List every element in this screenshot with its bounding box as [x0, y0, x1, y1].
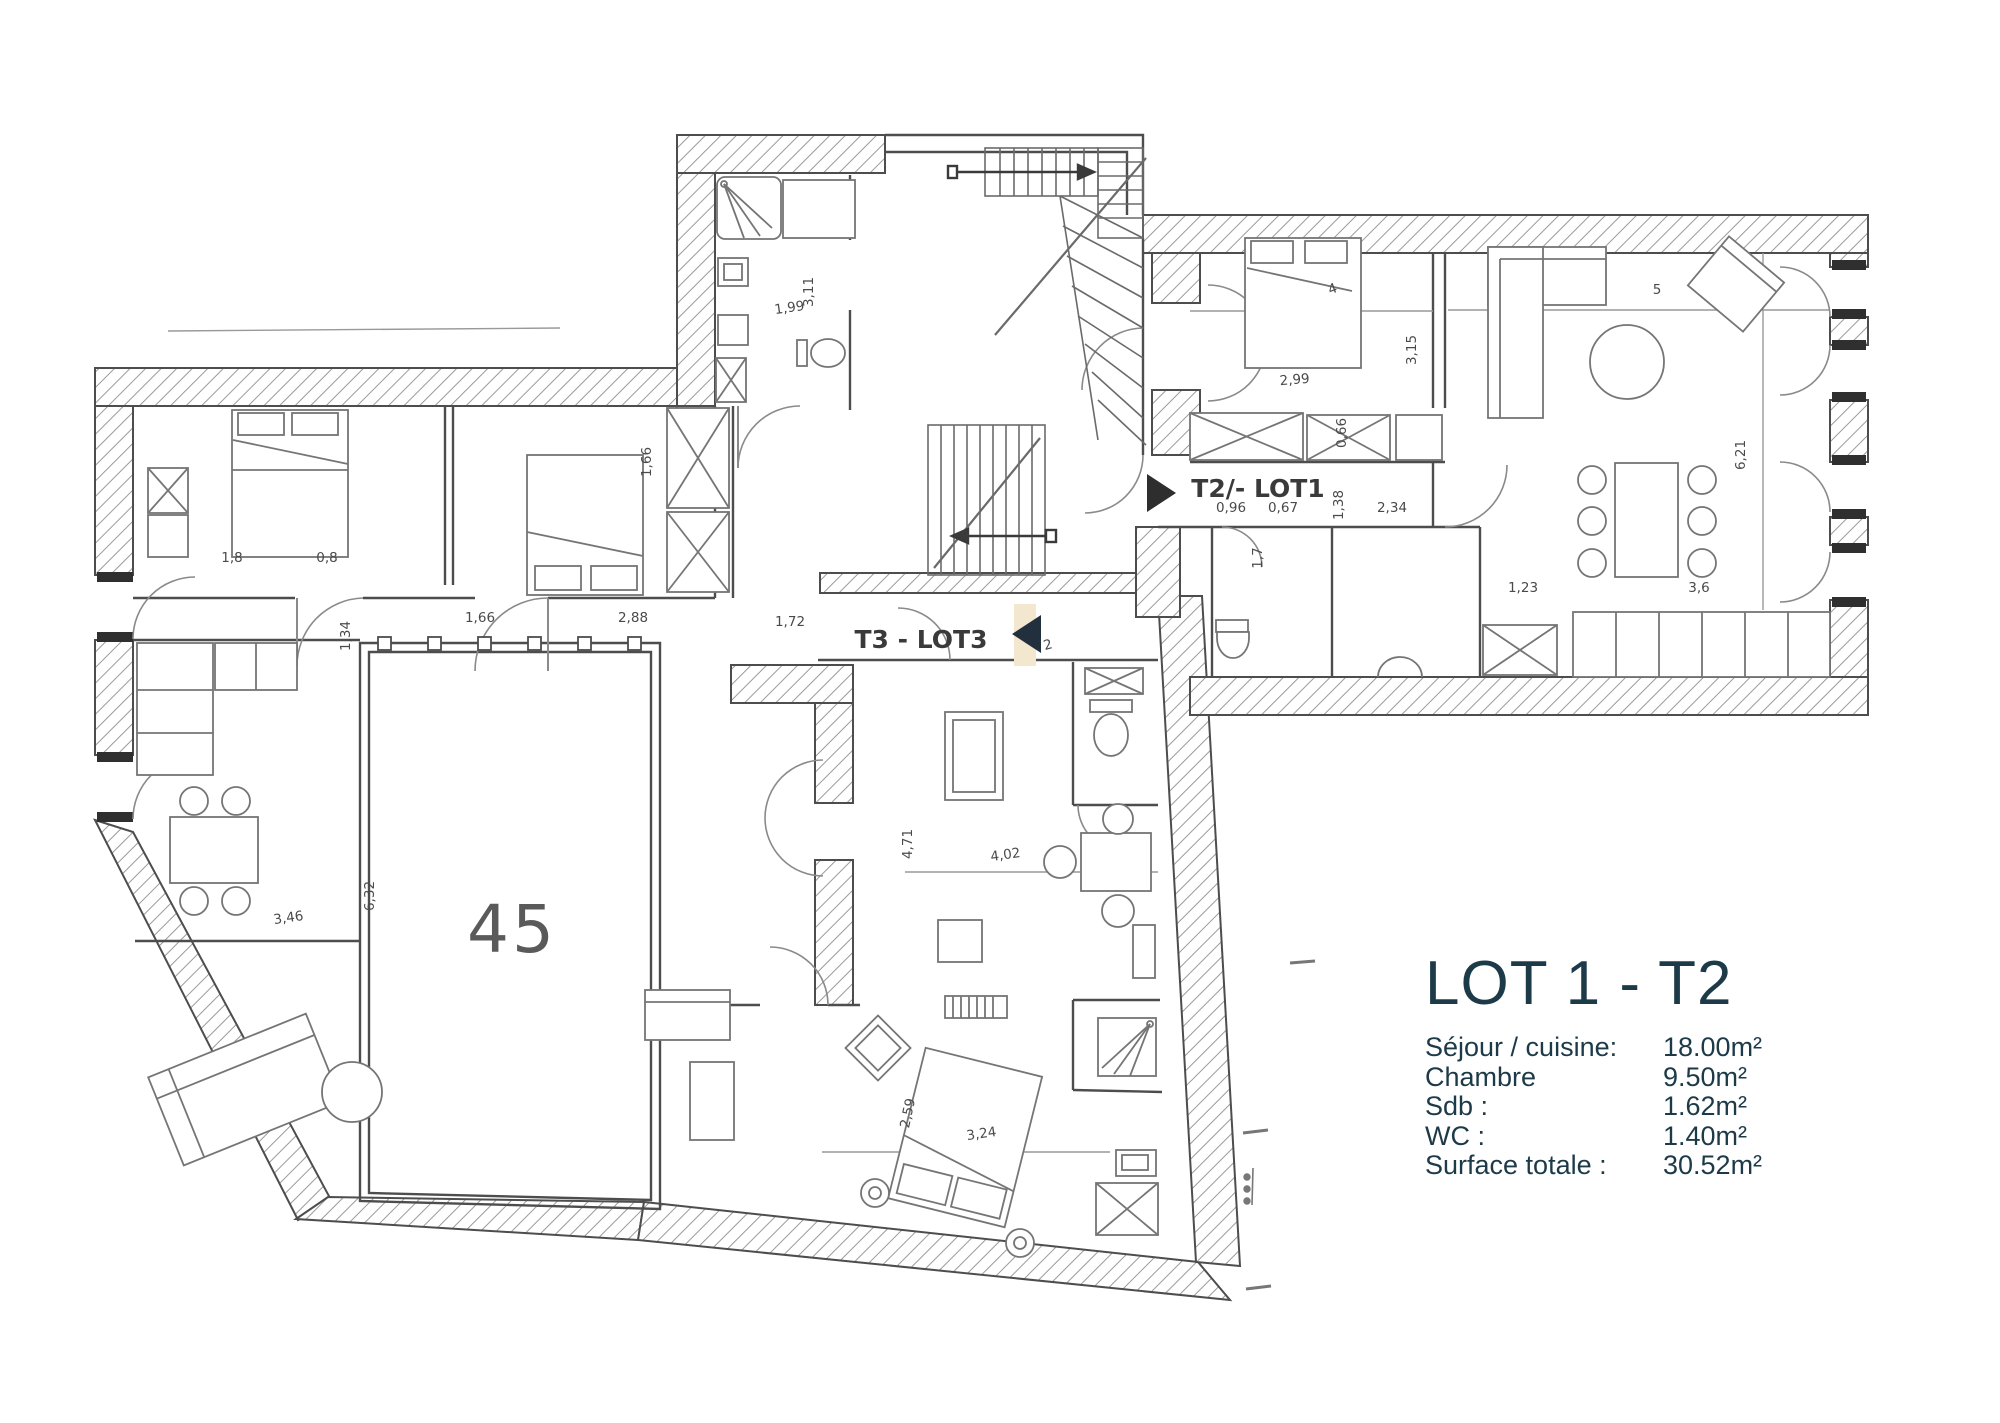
dimension-label: 3,15 [1404, 335, 1420, 365]
t2-wc-furniture [1216, 620, 1422, 677]
legend-title: LOT 1 - T2 [1425, 948, 1985, 1019]
stair-direction-arrows [948, 165, 1094, 543]
dimension-label: 1,7 [1250, 547, 1266, 568]
dimension-label: 3,46 [272, 908, 304, 928]
t3-wc-furniture [1085, 668, 1143, 834]
dimension-label: 3,6 [1688, 580, 1709, 596]
dimension-label: 4,02 [989, 845, 1021, 865]
dimension-label: 2,99 [1279, 371, 1310, 390]
dimension-label: 0,8 [316, 550, 337, 566]
dimension-label: 6,32 [362, 881, 378, 911]
dimension-label: 1,66 [639, 447, 655, 477]
legend-rows: Séjour / cuisine:18.00m²Chambre9.50m²Sdb… [1425, 1033, 1985, 1181]
dimension-label: 2,34 [1377, 500, 1407, 516]
legend-item-label: Séjour / cuisine: [1425, 1033, 1663, 1063]
legend-item-value: 1.40m² [1663, 1122, 1985, 1152]
unit-label-t2-lot1: T2/- LOT1 [1191, 474, 1324, 503]
dimension-label: 6,21 [1733, 440, 1749, 470]
dimension-label: 1,66 [465, 610, 495, 626]
dimension-label: 1,38 [1331, 490, 1347, 520]
dimension-label: 2 [1042, 636, 1054, 654]
t2-entry-arrow-icon [1147, 474, 1176, 512]
legend-item-value: 1.62m² [1663, 1092, 1985, 1122]
floor-plan-page: { "legend": { "title": "LOT 1 - T2", "it… [0, 0, 2000, 1423]
dimension-label: 5 [1653, 282, 1662, 298]
dimension-label: 4,71 [900, 829, 916, 859]
t3-shower-room-furniture [1096, 1018, 1158, 1235]
room-number-45: 45 [467, 891, 557, 968]
unit-label-t3-lot3: T3 - LOT3 [855, 625, 988, 654]
dimension-label: 2,88 [618, 610, 648, 626]
dimension-label: 3,11 [801, 277, 817, 307]
legend-item-label: WC : [1425, 1122, 1663, 1152]
legend-item-label: Sdb : [1425, 1092, 1663, 1122]
legend-item-label: Surface totale : [1425, 1151, 1663, 1181]
legend-item-value: 9.50m² [1663, 1063, 1985, 1093]
survey-marks [1243, 961, 1315, 1289]
legend: LOT 1 - T2 Séjour / cuisine:18.00m²Chamb… [1425, 948, 1985, 1181]
legend-item-label: Chambre [1425, 1063, 1663, 1093]
dimension-label: 1,23 [1508, 580, 1538, 596]
t2-living-furniture [1483, 236, 1830, 677]
stairs [928, 148, 1146, 575]
dimension-label: 0,66 [1334, 418, 1350, 448]
dimension-label: 1,34 [338, 621, 354, 651]
legend-item-value: 30.52m² [1663, 1151, 1985, 1181]
bathroom-top-furniture [716, 177, 855, 402]
dimension-label: 1,8 [221, 550, 242, 566]
dimension-label: 1,72 [775, 614, 805, 630]
floor-plan: 1,993,112,993,15456,211,233,60,960,671,3… [0, 0, 2000, 1423]
kitchen-t3 [137, 643, 297, 915]
t3-office-furniture [938, 712, 1155, 978]
bedroom1-furniture [148, 410, 348, 557]
legend-item-value: 18.00m² [1663, 1033, 1985, 1063]
bedroom2-furniture [527, 408, 729, 595]
